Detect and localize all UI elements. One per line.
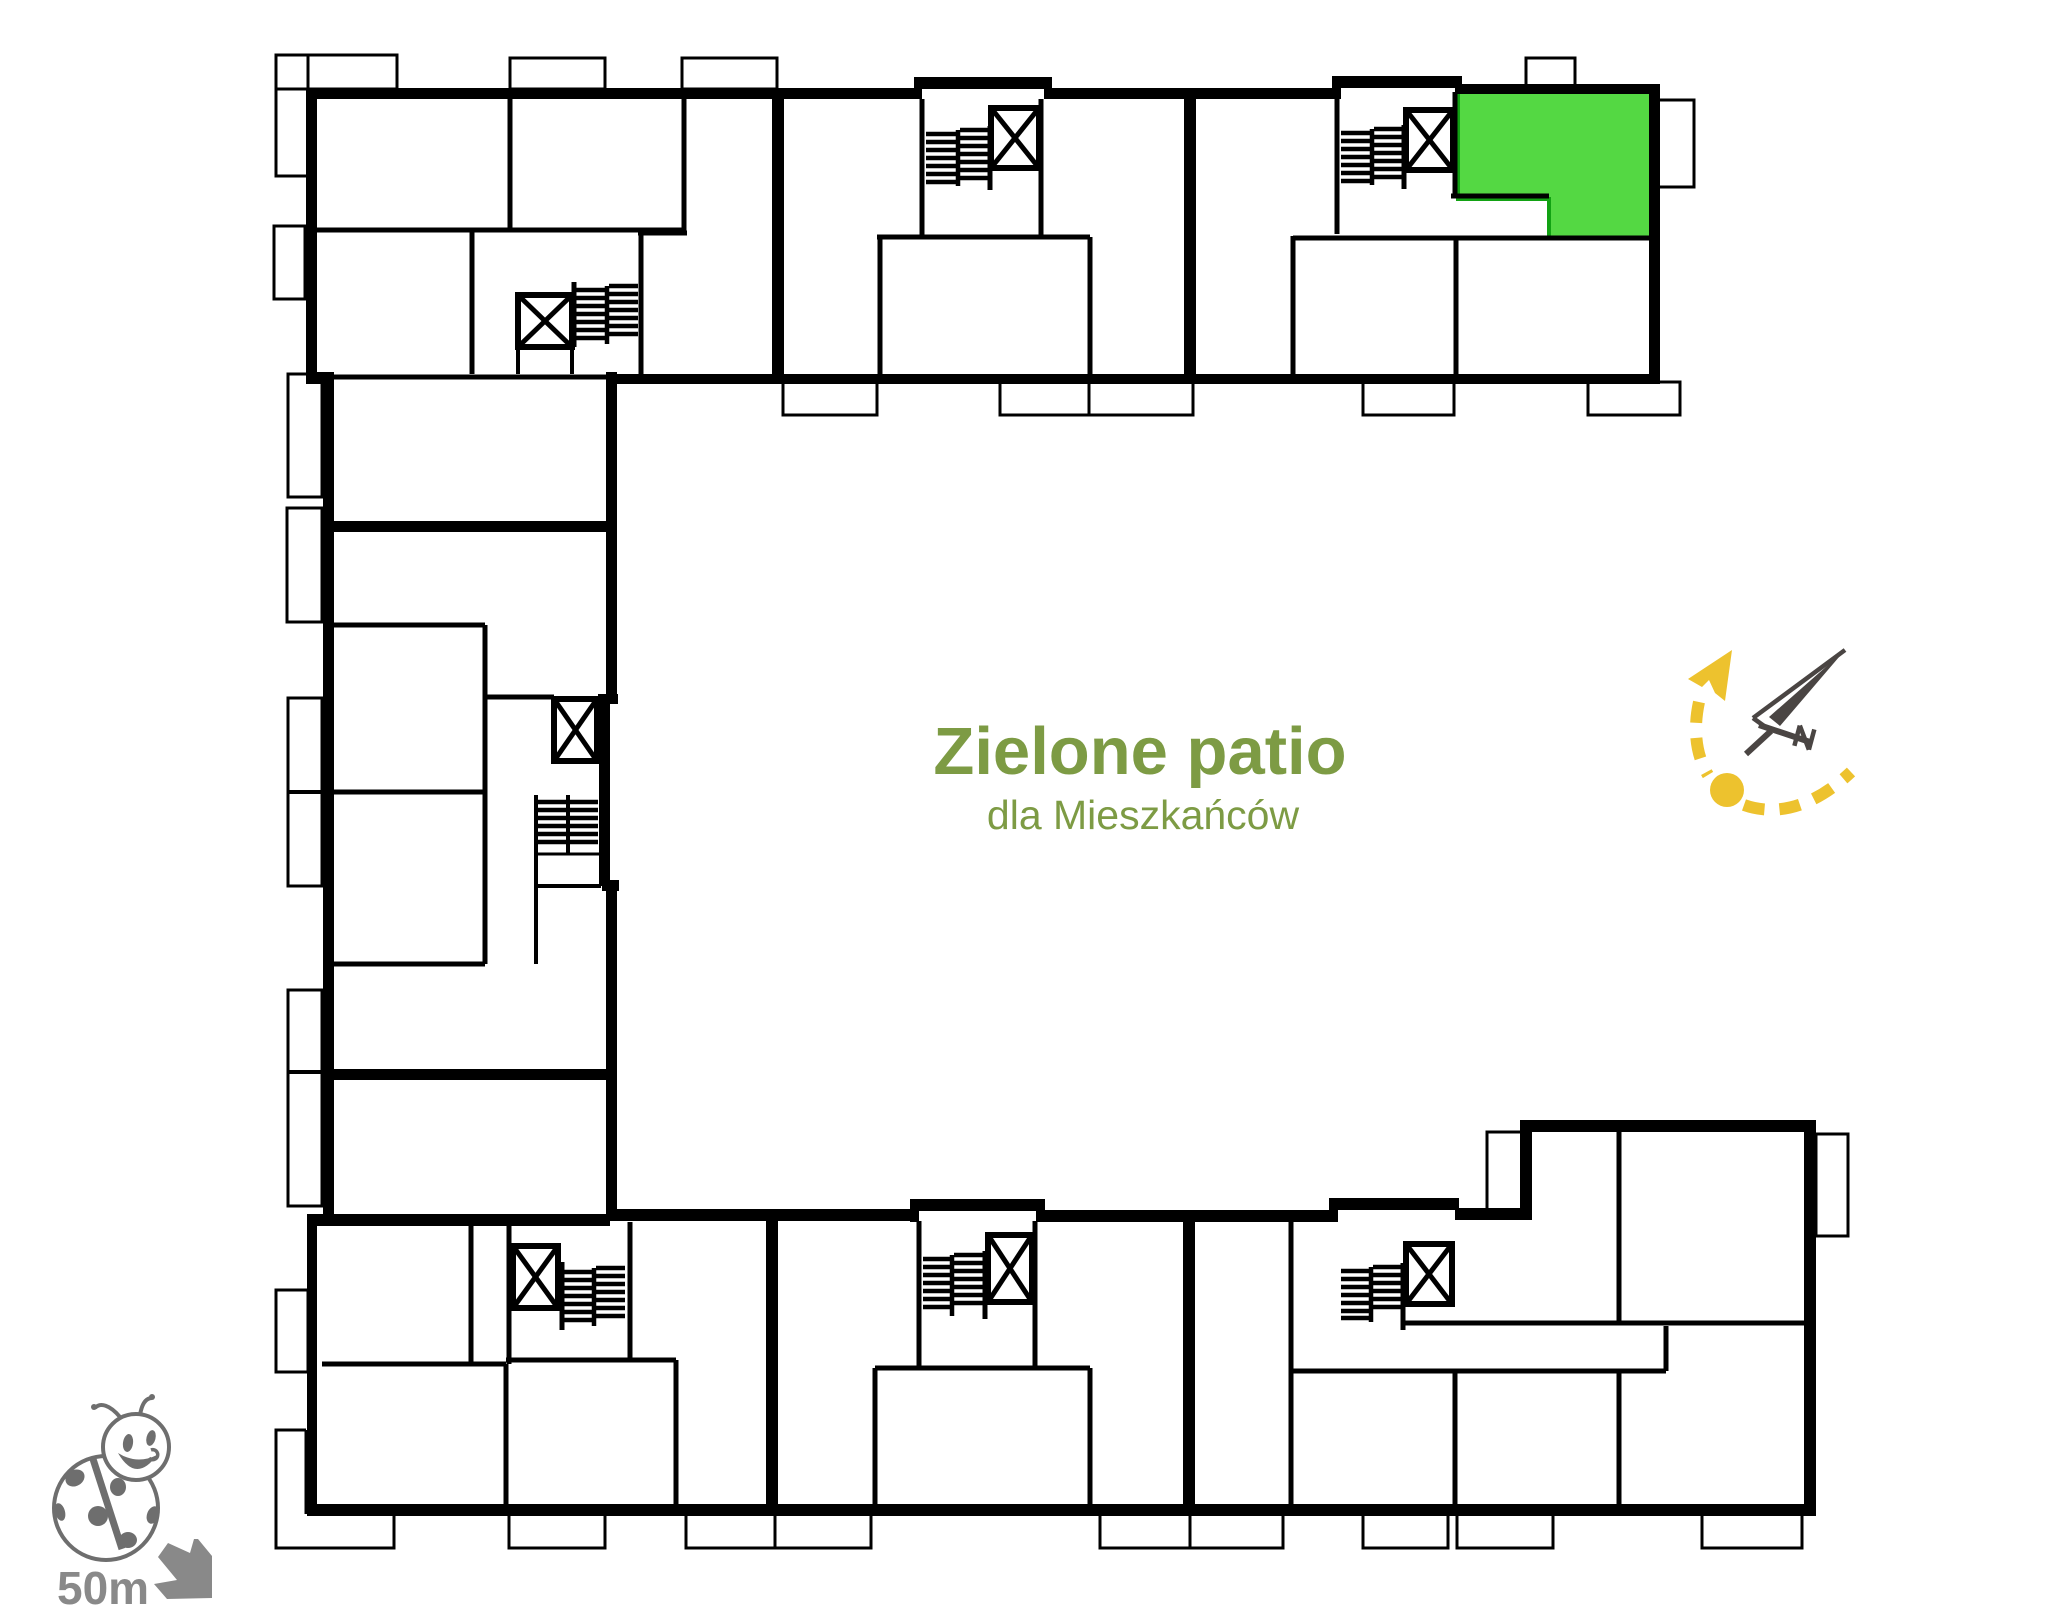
- svg-text:50m: 50m: [57, 1562, 149, 1614]
- svg-text:Zielone patio: Zielone patio: [933, 714, 1346, 789]
- svg-text:dla Mieszkańców: dla Mieszkańców: [987, 792, 1300, 838]
